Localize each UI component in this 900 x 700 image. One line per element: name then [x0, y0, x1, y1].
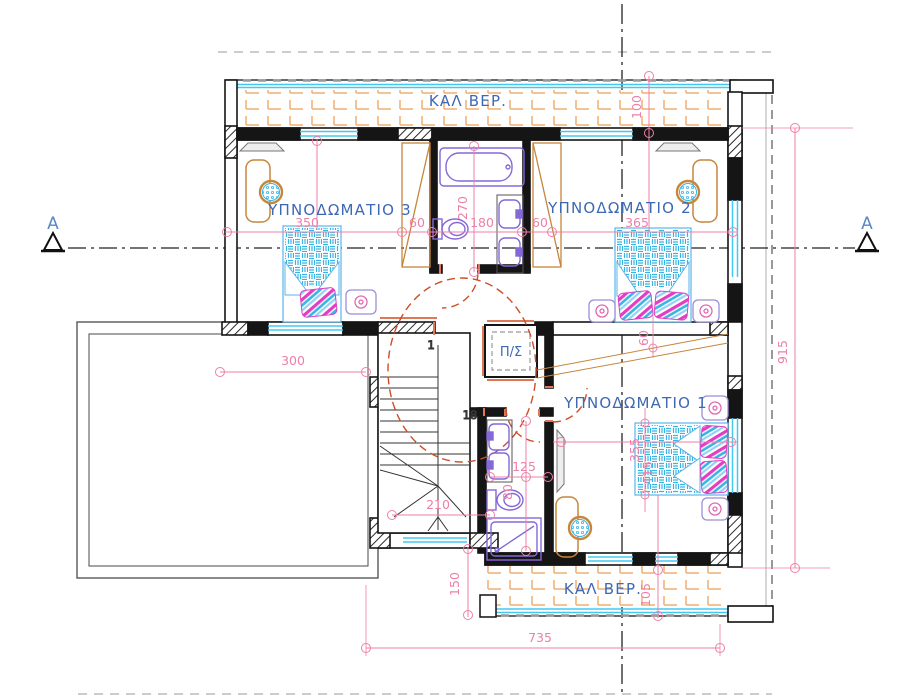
dim-bath-depth: 270 — [455, 196, 470, 220]
nightstand-bed1-bottom — [702, 498, 728, 520]
dim-building-width: 735 — [528, 630, 552, 645]
tv-bedroom1 — [557, 430, 564, 492]
veranda-top-label: ΚΑΛ ΒΕΡ. — [429, 92, 507, 110]
dim-terrace: 300 — [281, 353, 305, 368]
toilet-bath1 — [433, 219, 468, 239]
bed-bedroom3 — [283, 226, 341, 322]
tv-bedroom2 — [656, 143, 700, 151]
section-marker-left: A — [41, 214, 65, 251]
dim-bath-width: 180 — [470, 215, 494, 230]
bathtub — [440, 148, 524, 186]
tv-bedroom3 — [240, 143, 284, 151]
stair-step-first: 1 — [427, 338, 434, 352]
dim-bedroom1-b: 415 — [640, 461, 655, 485]
chair-bedroom3 — [260, 181, 282, 203]
dim-150: 150 — [447, 572, 462, 596]
bed-bedroom2 — [615, 228, 691, 322]
section-label-right: A — [861, 214, 873, 234]
dim-bedroom1-a: 355 — [627, 438, 642, 462]
dim-building-depth: 915 — [775, 340, 790, 364]
bathroom1 — [433, 148, 524, 273]
bedroom2-label: ΥΠΝΟΔΩΜΑΤΙΟ 2 — [547, 199, 692, 217]
nightstand-bed2-left — [589, 300, 615, 322]
stair-step-last: 18 — [463, 408, 478, 422]
utility-closet-label: Π/Σ — [500, 345, 522, 360]
veranda-bottom-label: ΚΑΛ ΒΕΡ. — [564, 580, 642, 598]
bath1-door-swing — [442, 272, 478, 308]
floor-plan-svg: A A ΚΑΛ ΒΕΡ. ΚΑΛ ΒΕΡ. — [0, 0, 900, 700]
floor-plan: A A ΚΑΛ ΒΕΡ. ΚΑΛ ΒΕΡ. — [0, 0, 900, 700]
nightstand-bed3 — [346, 290, 376, 314]
sinks-bath1 — [497, 195, 523, 273]
dim-veranda-bottom: 105 — [638, 583, 653, 607]
slope-lines-bedroom1 — [537, 334, 728, 378]
chair-bedroom1 — [569, 517, 591, 539]
dim-bath2-width: 125 — [512, 459, 536, 474]
dim-bath2-counter: 80 — [500, 484, 515, 500]
section-marker-right: A — [855, 214, 879, 251]
veranda-bottom: ΚΑΛ ΒΕΡ. — [480, 563, 773, 622]
dim-veranda-top: 100 — [629, 95, 644, 119]
dim-bedroom2-width: 365 — [625, 215, 649, 230]
veranda-top: ΚΑΛ ΒΕΡ. — [225, 80, 773, 128]
dim-stairs: 210 — [426, 497, 450, 512]
bedroom3-label: ΥΠΝΟΔΩΜΑΤΙΟ 3 — [267, 201, 412, 219]
bedroom1-label: ΥΠΝΟΔΩΜΑΤΙΟ 1 — [563, 394, 708, 412]
section-label-left: A — [47, 214, 59, 234]
nightstand-bed2-right — [693, 300, 719, 322]
roof-terrace — [77, 322, 378, 578]
dim-bath-right: 60 — [532, 215, 548, 230]
dim-bedroom2-gap: 60 — [636, 330, 651, 346]
